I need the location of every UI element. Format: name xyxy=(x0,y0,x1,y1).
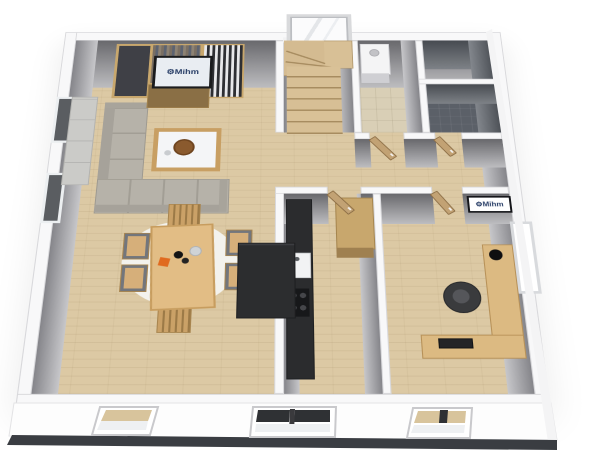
dining-chair-top xyxy=(167,204,200,226)
wall-sign-text: Mihm xyxy=(482,201,504,208)
wall-living-stair xyxy=(275,41,284,133)
wall-utility-bath xyxy=(418,79,495,84)
office-desk-return xyxy=(421,335,527,359)
wall-front xyxy=(15,394,550,407)
stair-tread-3 xyxy=(287,88,342,99)
office-chair-seat xyxy=(452,289,470,303)
wall-hallN-b xyxy=(403,133,435,140)
face-hallN-1 xyxy=(354,139,371,167)
kitchen-tall-cabinet-front xyxy=(336,248,373,258)
dining-chair-left-1 xyxy=(122,233,151,260)
wall-sign-logo: ⚙Mihm xyxy=(475,201,504,208)
sofa-back-bottom xyxy=(94,205,227,212)
desk-lamp-ball xyxy=(489,249,504,260)
stair-landing xyxy=(322,41,353,69)
face-hallN-2 xyxy=(404,139,438,167)
stair-tread-5 xyxy=(287,111,343,122)
stair-tread-6 xyxy=(287,122,343,134)
stair-tread-2 xyxy=(287,77,341,88)
wall-hallN-a xyxy=(354,133,370,140)
wall-hallS-a xyxy=(275,187,328,194)
dining-chair-bottom xyxy=(156,308,192,333)
fridge-vent-icon xyxy=(369,49,380,56)
wall-hallN-c xyxy=(461,133,502,140)
stair-tread-4 xyxy=(287,100,342,111)
floor-plate: ⚙Mihm ⚙Mihm xyxy=(15,32,550,406)
dining-chair-left-2 xyxy=(119,264,148,291)
tv: ⚙Mihm xyxy=(152,56,213,89)
tv-logo-text: Mihm xyxy=(175,68,200,75)
face-bath-north xyxy=(426,84,498,104)
kitchen-island xyxy=(236,243,296,319)
wall-hallS-b xyxy=(360,187,432,194)
wall-hallS-c xyxy=(462,187,510,194)
office-monitor xyxy=(438,338,473,348)
sofa-arm-right xyxy=(219,179,228,212)
dining-table xyxy=(150,224,216,311)
face-hallN-3 xyxy=(462,139,506,167)
wall-sign: ⚙Mihm xyxy=(467,196,513,213)
stair-tread-1 xyxy=(287,67,341,78)
scene-3d: ⚙Mihm ⚙Mihm xyxy=(0,0,600,450)
tv-logo: ⚙Mihm xyxy=(166,68,199,75)
fridge-front xyxy=(361,73,389,83)
floorplan-render: ⚙Mihm ⚙Mihm xyxy=(0,0,600,450)
